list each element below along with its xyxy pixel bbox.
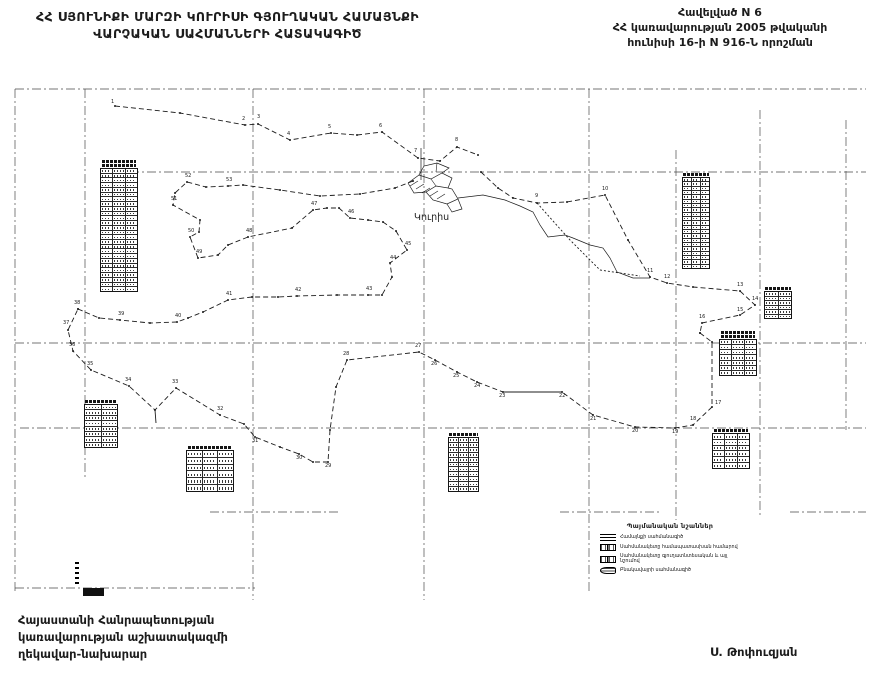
boundary-point	[149, 322, 151, 324]
table-cell	[449, 472, 458, 476]
boundary-point	[418, 351, 420, 353]
settlement-hatch	[430, 191, 438, 196]
table-cell	[691, 221, 700, 224]
table-cell	[187, 478, 202, 484]
table-row	[101, 253, 137, 258]
boundary-point	[406, 249, 408, 251]
boundary-point	[391, 276, 393, 278]
boundary-point-number: 33	[172, 379, 178, 385]
boundary-point-number: 7	[414, 148, 417, 154]
boundary-point	[477, 154, 479, 156]
table-cell	[101, 207, 112, 211]
boundary-point-number: 17	[715, 400, 721, 406]
table-cell	[713, 451, 724, 456]
table-cell	[112, 188, 124, 192]
boundary-point	[312, 461, 314, 463]
boundary-point	[701, 322, 703, 324]
table-cell	[101, 249, 112, 253]
table-cell	[778, 297, 792, 301]
boundary-point-number: 48	[246, 228, 252, 234]
table-cell	[683, 187, 691, 190]
table-row	[683, 255, 709, 259]
boundary-point	[367, 219, 369, 221]
legend-title: Պայմանական նշաններ	[600, 522, 740, 530]
table-row	[683, 264, 709, 268]
table-title-stripe	[714, 429, 749, 432]
table-row	[683, 194, 709, 198]
boundary-point-number: 23	[499, 393, 505, 399]
boundary-point	[456, 146, 458, 148]
legend-item: Սահմանակետը համապատասխան համարով	[600, 544, 740, 551]
boundary-point	[754, 304, 756, 306]
boundary-point	[367, 294, 369, 296]
table-row	[85, 442, 117, 447]
table-title-stripe	[449, 433, 478, 436]
boundary-point	[497, 187, 499, 189]
table-cell	[691, 195, 700, 198]
table-row	[713, 434, 749, 439]
table-cell	[724, 434, 736, 439]
coordinate-table	[719, 331, 757, 376]
table-cell	[458, 453, 468, 457]
table-title-stripe	[102, 160, 137, 163]
table-cell	[737, 457, 749, 462]
table-row	[101, 206, 137, 211]
boundary-point	[666, 282, 668, 284]
boundary-point	[439, 160, 441, 162]
boundary-point	[114, 105, 116, 107]
table-cell	[125, 212, 137, 216]
table-cell	[744, 366, 756, 370]
table-cell	[691, 226, 700, 229]
legend-item-label: Բնակավայրի սահմանագիծ	[620, 568, 691, 573]
table-cell	[683, 195, 691, 198]
table-row	[449, 438, 478, 442]
table-cell	[112, 235, 124, 239]
table-cell	[737, 434, 749, 439]
boundary-point-number: 51	[171, 196, 177, 202]
table-row	[683, 220, 709, 224]
table-cell	[713, 434, 724, 439]
table-cell	[468, 438, 478, 442]
boundary-point	[227, 244, 229, 246]
table-cell	[112, 216, 124, 220]
table-row	[449, 442, 478, 447]
boundary-point	[189, 236, 191, 238]
legend-item: Բնակավայրի սահմանագիծ	[600, 567, 740, 574]
boundary-point	[692, 424, 694, 426]
boundary-point	[98, 317, 100, 319]
boundary-point	[205, 186, 207, 188]
boundary-point-number: 47	[311, 201, 317, 207]
table-cell	[85, 427, 101, 431]
table-cell	[101, 443, 118, 447]
table-cell	[458, 472, 468, 476]
table-cell	[691, 208, 700, 211]
table-cell	[112, 197, 124, 201]
table-cell	[691, 230, 700, 233]
table-row	[449, 462, 478, 467]
table-cell	[458, 482, 468, 486]
table-cell	[125, 249, 137, 253]
table-cell	[700, 178, 709, 181]
boundary-point-number: 24	[474, 383, 480, 389]
table-cell	[700, 252, 709, 255]
boundary-point	[627, 239, 629, 241]
boundary-point	[330, 132, 332, 134]
table-row	[720, 344, 756, 349]
table-cell	[744, 355, 756, 359]
table-cell	[449, 453, 458, 457]
table-cell	[737, 446, 749, 451]
coordinate-table	[186, 446, 234, 492]
boundary-point	[227, 185, 229, 187]
northeast-boundary	[481, 172, 755, 333]
legend: Պայմանական նշաններ Համայնքի սահմանագիծ Ս…	[600, 522, 740, 577]
table-row	[765, 300, 791, 305]
table-cell	[101, 432, 118, 436]
table-row	[683, 212, 709, 216]
settlement-hatch	[431, 179, 436, 186]
boundary-point-number: 16	[699, 314, 705, 320]
table-row	[720, 365, 756, 370]
table-cell	[683, 178, 691, 181]
table-cell	[778, 292, 792, 296]
table-row	[101, 211, 137, 216]
coordinate-table	[100, 160, 138, 292]
table-cell	[737, 440, 749, 445]
boundary-point-number: 4	[287, 131, 290, 137]
table-cell	[202, 478, 218, 484]
table-cell	[683, 208, 691, 211]
table-cell	[125, 174, 137, 178]
table-cell	[458, 487, 468, 491]
table-cell	[125, 226, 137, 230]
table-cell	[85, 410, 101, 414]
table-cell	[458, 463, 468, 467]
table-cell	[101, 416, 118, 420]
table-cell	[458, 458, 468, 462]
table-cell	[700, 195, 709, 198]
table-cell	[125, 169, 137, 173]
table-cell	[187, 485, 202, 491]
boundary-point-number: 14	[752, 296, 758, 302]
table-row	[683, 207, 709, 211]
table-cell	[187, 465, 202, 471]
boundary-point-number: 19	[672, 429, 678, 435]
coordinate-table	[712, 429, 750, 469]
table-cell	[724, 440, 736, 445]
table-cell	[449, 438, 458, 442]
table-cell	[765, 310, 778, 314]
coordinate-table	[764, 287, 792, 319]
table-row	[713, 462, 749, 468]
boundary-point	[187, 317, 189, 319]
table-row	[449, 457, 478, 462]
table-row	[85, 420, 117, 425]
table-cell	[700, 234, 709, 237]
table-cell	[125, 193, 137, 197]
table-cell	[125, 183, 137, 187]
boundary-point	[172, 204, 174, 206]
boundary-point	[336, 294, 338, 296]
east-south-boundary	[68, 309, 712, 462]
table-row	[101, 225, 137, 230]
boundary-point-number: 52	[185, 173, 191, 179]
boundary-point-number: 6	[379, 123, 382, 129]
table-cell	[744, 371, 756, 375]
table-cell	[449, 448, 458, 452]
table-cell	[458, 443, 468, 447]
table-row	[101, 234, 137, 239]
table-cell	[683, 247, 691, 250]
table-row	[449, 452, 478, 457]
boundary-point-number: 10	[602, 186, 608, 192]
table-row	[85, 436, 117, 441]
table-cell	[217, 485, 233, 491]
legend-item: Համայնքի սահմանագիծ	[600, 534, 740, 541]
boundary-point-number: 28	[343, 351, 349, 357]
table-cell	[683, 234, 691, 237]
table-cell	[468, 458, 478, 462]
table-row	[449, 471, 478, 476]
table-row	[187, 464, 233, 471]
boundary-point	[739, 290, 741, 292]
table-cell	[744, 345, 756, 349]
table-cell	[112, 183, 124, 187]
table-cell	[765, 297, 778, 301]
table-row	[683, 178, 709, 181]
boundary-point	[711, 341, 713, 343]
table-row	[683, 229, 709, 233]
table-cell	[744, 361, 756, 365]
legend-item-label: Համայնքի սահմանագիծ	[620, 535, 683, 540]
table-row	[683, 190, 709, 194]
boundary-point	[119, 319, 121, 321]
table-cell	[85, 432, 101, 436]
table-cell	[468, 482, 478, 486]
table-cell	[691, 200, 700, 203]
settlement-hatch	[437, 194, 445, 199]
boundary-point	[277, 296, 279, 298]
table-row	[101, 230, 137, 235]
table-cell	[691, 234, 700, 237]
table-cell	[683, 204, 691, 207]
table-row	[683, 181, 709, 185]
table-cell	[101, 202, 112, 206]
stream-line	[458, 195, 650, 278]
table-row	[713, 445, 749, 451]
table-cell	[683, 182, 691, 185]
table-cell	[217, 478, 233, 484]
table-cell	[112, 221, 124, 225]
boundary-point-number: 46	[348, 209, 354, 215]
boundary-point	[279, 446, 281, 448]
table-cell	[691, 187, 700, 190]
boundary-point-number: 39	[118, 311, 124, 317]
boundary-point	[243, 423, 245, 425]
table-cell	[187, 458, 202, 464]
table-title-stripe	[188, 446, 232, 449]
table-cell	[691, 217, 700, 220]
table-cell	[125, 287, 137, 291]
table-row	[683, 233, 709, 237]
table-cell	[700, 230, 709, 233]
table-cell	[112, 259, 124, 263]
boundary-point-number: 9	[535, 193, 538, 199]
table-cell	[101, 273, 112, 277]
table-cell	[713, 463, 724, 468]
table-cell	[700, 243, 709, 246]
boundary-point-number: 30	[296, 455, 302, 461]
boundary-point-number: 5	[328, 124, 331, 130]
boundary-point-number: 34	[125, 377, 131, 383]
table-cell	[691, 204, 700, 207]
table-cell	[691, 243, 700, 246]
table-cell	[468, 443, 478, 447]
table-cell	[112, 212, 124, 216]
table-row	[101, 196, 137, 201]
table-row	[449, 466, 478, 471]
boundary-point	[217, 254, 219, 256]
table-cell	[112, 273, 124, 277]
table-cell	[125, 188, 137, 192]
table-cell	[683, 260, 691, 263]
table-cell	[468, 477, 478, 481]
boundary-point	[566, 201, 568, 203]
table-row	[101, 248, 137, 253]
table-cell	[449, 477, 458, 481]
table-row	[101, 239, 137, 244]
boundary-point	[739, 314, 741, 316]
table-cell	[101, 287, 112, 291]
table-cell	[101, 254, 112, 258]
table-cell	[101, 221, 112, 225]
boundary-point	[174, 192, 176, 194]
table-cell	[683, 252, 691, 255]
table-cell	[683, 243, 691, 246]
table-cell	[468, 472, 478, 476]
boundary-point-number: 32	[217, 406, 223, 412]
boundary-point	[247, 236, 249, 238]
table-row	[187, 457, 233, 464]
table-row	[683, 186, 709, 190]
table-row	[85, 405, 117, 409]
table-cell	[700, 191, 709, 194]
table-cell	[101, 216, 112, 220]
boundary-point	[251, 296, 253, 298]
boundary-point-number: 41	[226, 291, 232, 297]
table-cell	[112, 245, 124, 249]
table-cell	[125, 221, 137, 225]
table-cell	[112, 207, 124, 211]
table-cell	[724, 451, 736, 456]
table-cell	[449, 487, 458, 491]
boundary-point	[346, 359, 348, 361]
table-cell	[125, 245, 137, 249]
table-cell	[713, 440, 724, 445]
table-cell	[125, 273, 137, 277]
table-cell	[731, 355, 743, 359]
signature-name: Ս. Թոփուզյան	[710, 645, 797, 659]
boundary-point	[356, 134, 358, 136]
table-cell	[700, 260, 709, 263]
table-row	[85, 409, 117, 414]
table-cell	[731, 345, 743, 349]
table-cell	[691, 239, 700, 242]
table-cell	[737, 463, 749, 468]
table-cell	[125, 268, 137, 272]
table-cell	[683, 200, 691, 203]
table-cell	[112, 264, 124, 268]
settlement-label: Կուրիս	[414, 212, 449, 223]
table-cell	[691, 265, 700, 268]
table-cell	[691, 213, 700, 216]
table-cell	[202, 451, 218, 457]
table-cell	[683, 191, 691, 194]
table-cell	[744, 340, 756, 344]
boundary-point-number: 25	[453, 373, 459, 379]
boundary-point-number: 38	[74, 300, 80, 306]
boundary-point	[349, 217, 351, 219]
boundary-point-number: 11	[647, 268, 653, 274]
table-row	[101, 282, 137, 287]
table-cell	[468, 448, 478, 452]
table-row	[720, 349, 756, 354]
table-cell	[112, 254, 124, 258]
boundary-point	[512, 197, 514, 199]
boundary-point	[296, 295, 298, 297]
table-cell	[700, 208, 709, 211]
table-cell	[101, 178, 112, 182]
boundary-point	[338, 207, 340, 209]
table-row	[720, 370, 756, 375]
table-cell	[700, 213, 709, 216]
table-cell	[101, 245, 112, 249]
table-row	[101, 169, 137, 173]
table-cell	[112, 268, 124, 272]
table-cell	[217, 465, 233, 471]
boundary-point-number: 37	[63, 320, 69, 326]
boundary-point-number: 35	[87, 361, 93, 367]
table-cell	[720, 340, 731, 344]
table-row	[101, 220, 137, 225]
table-cell	[125, 231, 137, 235]
table-cell	[731, 371, 743, 375]
table-row	[187, 470, 233, 477]
table-cell	[125, 197, 137, 201]
table-cell	[112, 287, 124, 291]
table-row	[101, 215, 137, 220]
table-cell	[691, 256, 700, 259]
table-title-stripe	[85, 400, 116, 403]
boundary-point	[90, 369, 92, 371]
table-cell	[112, 193, 124, 197]
table-row	[187, 477, 233, 484]
table-cell	[458, 477, 468, 481]
table-cell	[101, 264, 112, 268]
table-cell	[683, 230, 691, 233]
table-cell	[700, 200, 709, 203]
scale-ticks	[75, 562, 79, 586]
boundary-point-agri-symbol	[600, 556, 616, 563]
table-cell	[101, 188, 112, 192]
boundary-point-number-symbol	[600, 544, 616, 551]
boundary-point-number: 36	[69, 342, 75, 348]
table-cell	[101, 226, 112, 230]
table-cell	[202, 458, 218, 464]
table-cell	[731, 361, 743, 365]
